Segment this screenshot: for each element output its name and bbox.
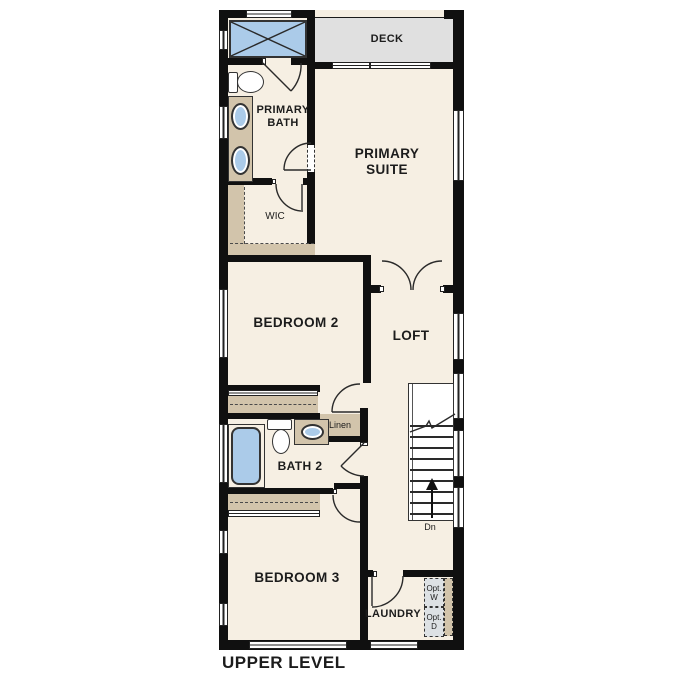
wall-wic-bottom [219, 255, 371, 262]
bathtub [231, 427, 261, 485]
window-left-bedroom3-a [219, 530, 228, 554]
wall-bath2-right-upper [360, 408, 368, 442]
wall-bath-bottom-b [303, 178, 315, 185]
window-left-bath [219, 106, 228, 139]
stair-tread [410, 447, 453, 449]
shower [229, 20, 307, 58]
jamb-bedroom3-door [333, 489, 337, 494]
door-leaf-bedroom3 [334, 483, 360, 489]
window-right-loft [453, 313, 464, 360]
window-left-bath2 [219, 424, 228, 483]
opening-bath-suite [307, 145, 315, 172]
bath2-sink [301, 424, 324, 440]
window-right-stair-b [453, 430, 464, 477]
window-right-suite [453, 110, 464, 181]
wic-shelf-dash-h [230, 243, 314, 244]
toilet-bowl-bath2 [272, 429, 290, 454]
optional-washer-box: Opt. W [424, 578, 444, 607]
floor-plan: Opt. W Opt. D DECK PRIMARY BATH PRIMARY … [0, 0, 687, 687]
sliding-door-tick [369, 63, 371, 68]
stair-arrow-stem [431, 490, 433, 518]
closet-bedroom2-dash [230, 404, 316, 405]
primary-bath-label: PRIMARY BATH [248, 104, 318, 130]
window-left-shower [219, 30, 228, 50]
stair-tread [410, 425, 453, 427]
window-bottom-bedroom3 [249, 641, 347, 649]
wall-bedroom2-loft [363, 255, 371, 383]
stair-tread [410, 436, 453, 438]
window-top-shower [246, 10, 292, 18]
stair-tread [410, 458, 453, 460]
jamb-suite-door-left [379, 286, 384, 292]
primary-suite-label: PRIMARY SUITE [337, 146, 437, 178]
window-right-stair-c [453, 487, 464, 528]
stair-rail-line [412, 384, 413, 520]
jamb-wic-door [272, 179, 276, 184]
closet-bedroom3-sliding-door [228, 510, 320, 517]
sliding-door-deck [332, 62, 431, 69]
closet-bedroom3-dash [230, 502, 318, 503]
wall-laundry-top-a [360, 570, 373, 577]
laundry-label: LAUNDRY [350, 608, 436, 621]
wic-shelf-bottom [228, 244, 315, 255]
wall-suite-bottom-b [443, 285, 464, 293]
bath2-label: BATH 2 [260, 459, 340, 473]
jamb-laundry-door [373, 571, 377, 577]
window-bottom-laundry [370, 641, 418, 649]
jamb-shower-door [262, 58, 266, 65]
deck-label: DECK [347, 33, 427, 46]
laundry-counter [444, 578, 453, 636]
sink-primary-2 [231, 146, 250, 175]
window-right-stair-a [453, 373, 464, 419]
wall-shower-bottom-a [228, 58, 262, 65]
wic-label: WIC [255, 211, 295, 223]
wic-shelf-dash-v [244, 187, 245, 244]
window-left-bedroom2 [219, 289, 228, 358]
wall-laundry-top-b [403, 570, 453, 577]
window-left-bedroom3-b [219, 603, 228, 626]
stairs-dn-label: Dn [415, 522, 445, 533]
bedroom2-label: BEDROOM 2 [236, 315, 356, 331]
page-title: UPPER LEVEL [222, 653, 422, 673]
wall-deck-corner-post [444, 10, 464, 19]
stair-tread [410, 469, 453, 471]
jamb-suite-door-right [440, 286, 445, 292]
toilet-bowl-primary [237, 71, 264, 93]
stair-arrow-head [426, 478, 438, 490]
linen-label: Linen [322, 420, 358, 431]
loft-label: LOFT [371, 328, 451, 344]
bedroom3-label: BEDROOM 3 [237, 570, 357, 586]
jamb-bath2-door [360, 442, 368, 446]
